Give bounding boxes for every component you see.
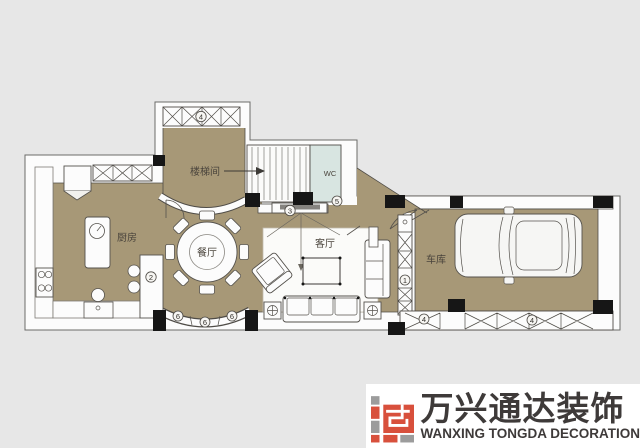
marker-garage-right: 4 <box>527 315 537 325</box>
floorplan-image: 厨房 餐厅 客厅 车库 楼梯间 WC 4 2 3 5 1 6 <box>0 0 640 448</box>
kitchen-island <box>85 217 110 268</box>
svg-text:4: 4 <box>199 112 203 121</box>
sofa <box>283 296 360 322</box>
marker-bay-left: 6 <box>173 311 183 321</box>
logo-name-en: WANXING TONGDA DECORATION <box>420 427 640 441</box>
bar-stool <box>128 265 140 277</box>
marker-divider: 1 <box>400 275 410 285</box>
bar-stool <box>128 281 140 293</box>
car <box>455 207 582 284</box>
svg-text:1: 1 <box>403 276 407 285</box>
svg-text:2: 2 <box>149 273 153 282</box>
coffee-table <box>302 257 342 286</box>
svg-text:4: 4 <box>530 316 534 325</box>
svg-text:6: 6 <box>176 312 180 321</box>
svg-text:6: 6 <box>230 312 234 321</box>
marker-bay-right: 6 <box>227 311 237 321</box>
marker-wc-door: 5 <box>332 196 342 206</box>
side-table-left <box>264 302 281 319</box>
logo-text: 万兴通达装饰 WANXING TONGDA DECORATION <box>420 392 640 441</box>
divider-window <box>398 215 412 315</box>
dining-label: 餐厅 <box>197 246 217 259</box>
loveseat <box>365 240 390 298</box>
marker-bay-mid: 6 <box>200 317 210 327</box>
garage-window <box>400 311 613 330</box>
kitchen-label: 厨房 <box>117 231 137 244</box>
stairwell-label: 楼梯间 <box>190 165 220 178</box>
kitchen-window <box>93 165 152 181</box>
logo-name-cn: 万兴通达装饰 <box>420 392 640 425</box>
svg-text:3: 3 <box>288 206 292 215</box>
marker-garage-left: 4 <box>419 314 429 324</box>
living-label: 客厅 <box>315 237 335 250</box>
wc-label: WC <box>324 169 337 178</box>
logo-icon <box>371 388 414 444</box>
marker-bar: 2 <box>146 272 156 282</box>
marker-tv: 3 <box>285 205 295 215</box>
side-table-right <box>364 302 381 319</box>
stove <box>36 268 53 297</box>
svg-text:6: 6 <box>203 318 207 327</box>
garage-label: 车库 <box>426 253 446 266</box>
svg-text:4: 4 <box>422 315 426 324</box>
svg-text:5: 5 <box>335 197 339 206</box>
marker-top-window: 4 <box>196 111 206 121</box>
logo: 万兴通达装饰 WANXING TONGDA DECORATION <box>366 384 640 448</box>
floor-plan: 厨房 餐厅 客厅 车库 楼梯间 WC 4 2 3 5 1 6 <box>0 0 640 448</box>
